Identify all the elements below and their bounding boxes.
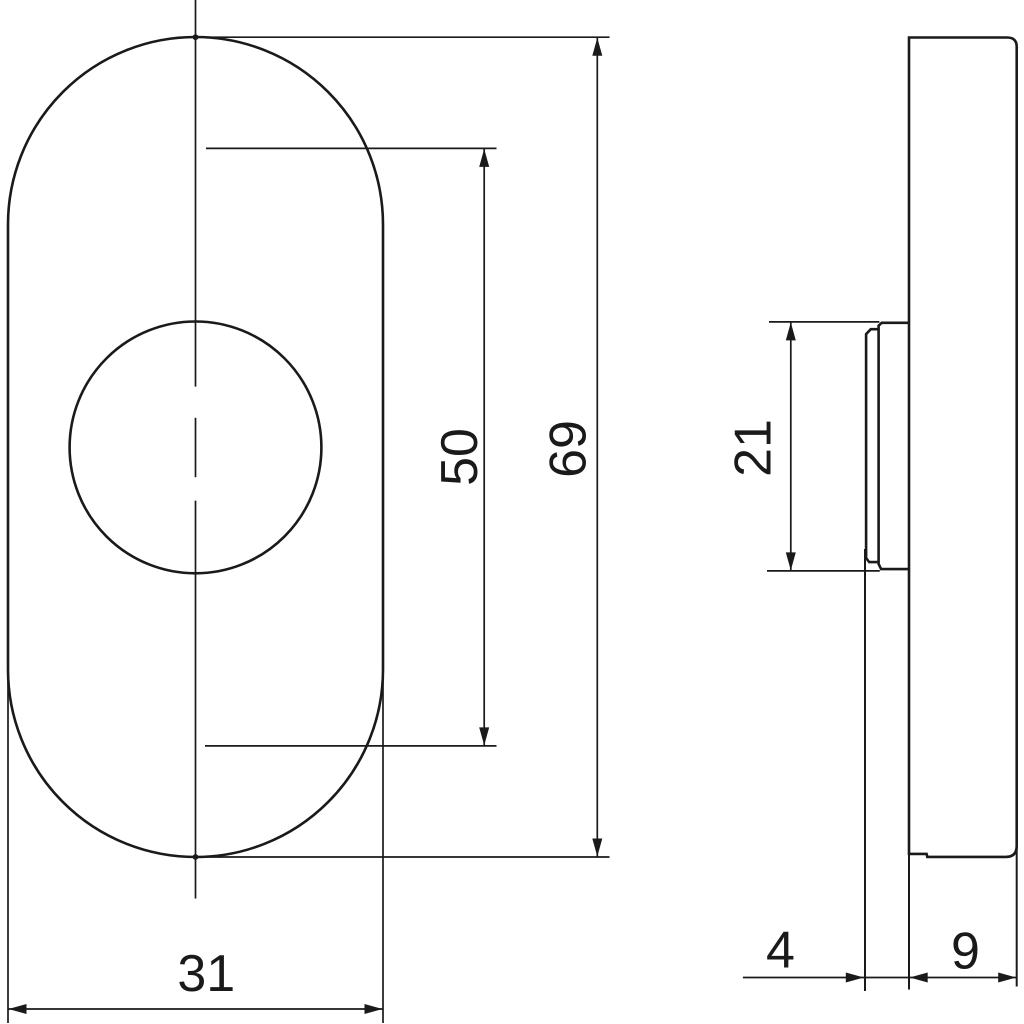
svg-text:21: 21 [725,419,783,477]
svg-text:9: 9 [951,922,980,980]
svg-text:31: 31 [177,945,235,1003]
svg-text:69: 69 [540,420,598,478]
svg-text:50: 50 [431,428,489,486]
svg-text:4: 4 [766,922,795,980]
